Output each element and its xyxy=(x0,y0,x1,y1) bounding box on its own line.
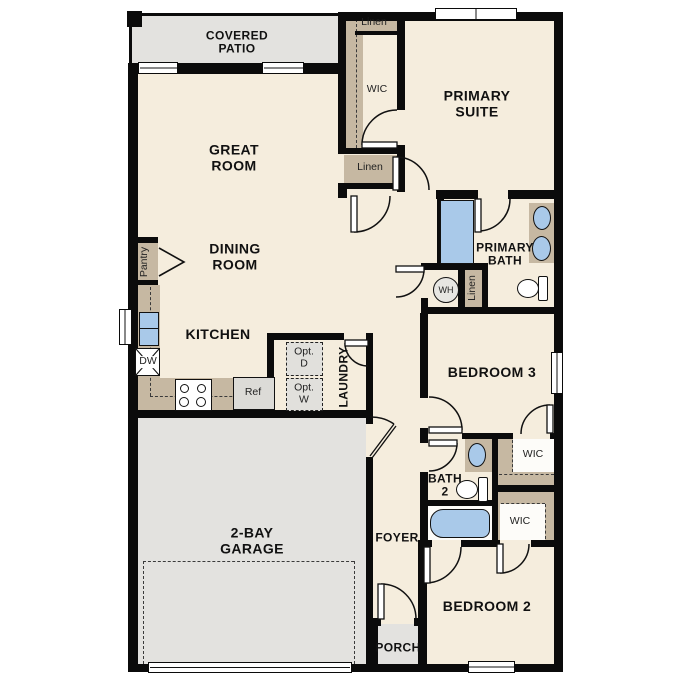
garage-door-dashed-left xyxy=(143,561,144,664)
wic3-dashed-v xyxy=(512,440,513,472)
wall-bed3-bottom-a xyxy=(462,433,513,439)
wall-dining-stub xyxy=(338,189,347,198)
wall-below-shower xyxy=(421,263,482,270)
patio-post xyxy=(127,11,142,27)
wic3-dashed-h xyxy=(499,474,554,475)
stove-burner-2 xyxy=(197,384,206,393)
label-primary-bath: PRIMARYBATH xyxy=(476,242,534,269)
primary-toilet-tank xyxy=(538,276,548,301)
wall-garage-right-a xyxy=(366,418,373,424)
label-great-room: GREATROOM xyxy=(209,142,259,173)
window-bedroom3 xyxy=(551,352,563,394)
window-bedroom2 xyxy=(468,661,515,673)
bathtub xyxy=(430,509,490,538)
label-linen-hall: Linen xyxy=(357,162,383,174)
label-wic-bedroom2: WIC xyxy=(510,516,530,528)
label-opt-washer: Opt.W xyxy=(294,382,314,406)
wall-bed2-top-a xyxy=(418,540,432,547)
wall-bath2-left-a xyxy=(420,428,428,443)
kitchen-sink-bottom xyxy=(139,328,159,346)
wall-front-a xyxy=(371,618,381,626)
wall-bed2-top-b xyxy=(461,540,500,547)
wall-bath2-left-b xyxy=(420,472,428,547)
label-dining-room: DININGROOM xyxy=(209,241,260,272)
stove-burner-1 xyxy=(180,384,189,393)
wall-suite-left-b xyxy=(397,145,405,192)
wall-linen2-bottom xyxy=(338,183,404,189)
wall-suite-bottom-b xyxy=(508,190,554,199)
wall-right xyxy=(554,12,563,672)
wall-linen3-left xyxy=(458,263,465,313)
window-greatroom-1 xyxy=(138,62,178,74)
wall-wic-left xyxy=(338,14,346,154)
label-pantry: Pantry xyxy=(139,247,151,277)
wall-laundry-top xyxy=(267,333,344,340)
wall-bed3-left xyxy=(420,313,428,398)
label-wic-bedroom3: WIC xyxy=(523,449,543,461)
shower xyxy=(440,200,474,264)
wall-bath-bottom xyxy=(421,307,554,314)
wall-suite-left-a xyxy=(397,14,405,110)
primary-sink-2 xyxy=(532,236,551,261)
stove-burner-3 xyxy=(179,397,189,407)
wall-bed3-bottom-b xyxy=(550,433,562,439)
stove-burner-4 xyxy=(196,397,206,407)
wic-primary-shelf-strip xyxy=(346,32,363,148)
bath2-sink xyxy=(468,443,486,467)
label-refrigerator: Ref xyxy=(245,387,261,399)
wic2-dashed-v xyxy=(545,504,546,539)
label-opt-dryer: Opt.D xyxy=(294,346,314,370)
label-covered-patio: COVEREDPATIO xyxy=(206,30,268,57)
window-greatroom-2 xyxy=(262,62,304,74)
label-kitchen: KITCHEN xyxy=(185,327,250,343)
wall-front-b xyxy=(414,618,427,626)
garage-door-dashed-right xyxy=(354,561,355,664)
label-dishwasher: DW xyxy=(138,356,158,368)
label-primary-suite: PRIMARYSUITE xyxy=(444,88,511,119)
kitchen-sink-top xyxy=(139,312,159,329)
wall-pantry-bottom xyxy=(128,280,158,285)
wall-bed2-top-c xyxy=(531,540,556,547)
label-linen-top: Linen xyxy=(361,17,387,29)
primary-sink-1 xyxy=(533,206,551,230)
garage-door-dashed-top xyxy=(143,561,354,562)
label-bedroom3: BEDROOM 3 xyxy=(448,365,536,381)
wall-bottom-right xyxy=(350,664,563,672)
label-bedroom2: BEDROOM 2 xyxy=(443,599,531,615)
patio-edge-top xyxy=(129,13,340,16)
label-garage: 2-BAYGARAGE xyxy=(220,525,284,556)
window-primary-suite xyxy=(435,8,517,20)
wall-linen3-right xyxy=(482,263,488,313)
label-water-heater: WH xyxy=(439,285,454,295)
label-laundry: LAUNDRY xyxy=(337,346,350,407)
garage-door xyxy=(148,662,352,673)
primary-toilet-bowl xyxy=(517,279,539,298)
wall-bottom-garage-left xyxy=(128,664,150,672)
wic-rod-dashed xyxy=(356,19,357,148)
wall-pantry-top xyxy=(128,237,158,243)
wall-garage-top xyxy=(128,410,373,418)
label-porch: PORCH xyxy=(375,641,420,654)
wall-suite-bottom-a xyxy=(436,190,478,199)
wall-wic-divider xyxy=(498,485,556,492)
wic2-dashed-h xyxy=(501,503,545,504)
label-bath2: BATH2 xyxy=(428,473,462,500)
label-foyer: FOYER xyxy=(375,531,418,544)
window-kitchen xyxy=(119,309,132,345)
label-linen-bath: Linen xyxy=(467,275,479,301)
wall-wic-bottom xyxy=(338,148,404,154)
label-wic-primary: WIC xyxy=(367,84,387,96)
floor-plan: COVEREDPATIO GREATROOM DININGROOM KITCHE… xyxy=(0,0,687,687)
bath2-toilet-tank xyxy=(478,477,488,502)
wall-laundry-right xyxy=(366,333,373,418)
